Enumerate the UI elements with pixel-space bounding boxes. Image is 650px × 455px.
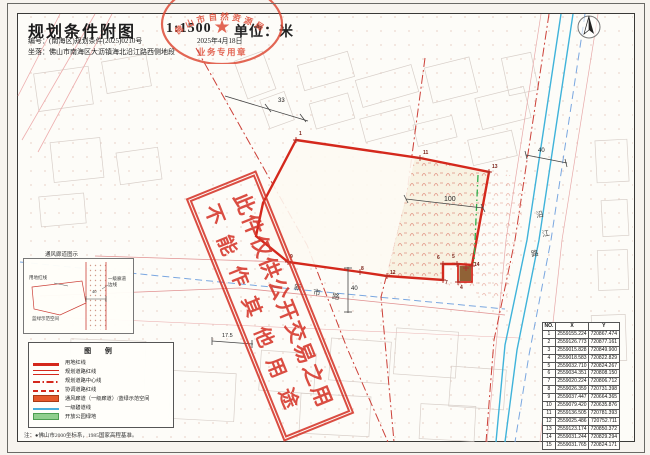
planning-map-sheet: 33 100 40 40 17.5 1 11 13 14 5 6 7 4 12 … (0, 0, 650, 455)
sheet-border (7, 3, 645, 453)
